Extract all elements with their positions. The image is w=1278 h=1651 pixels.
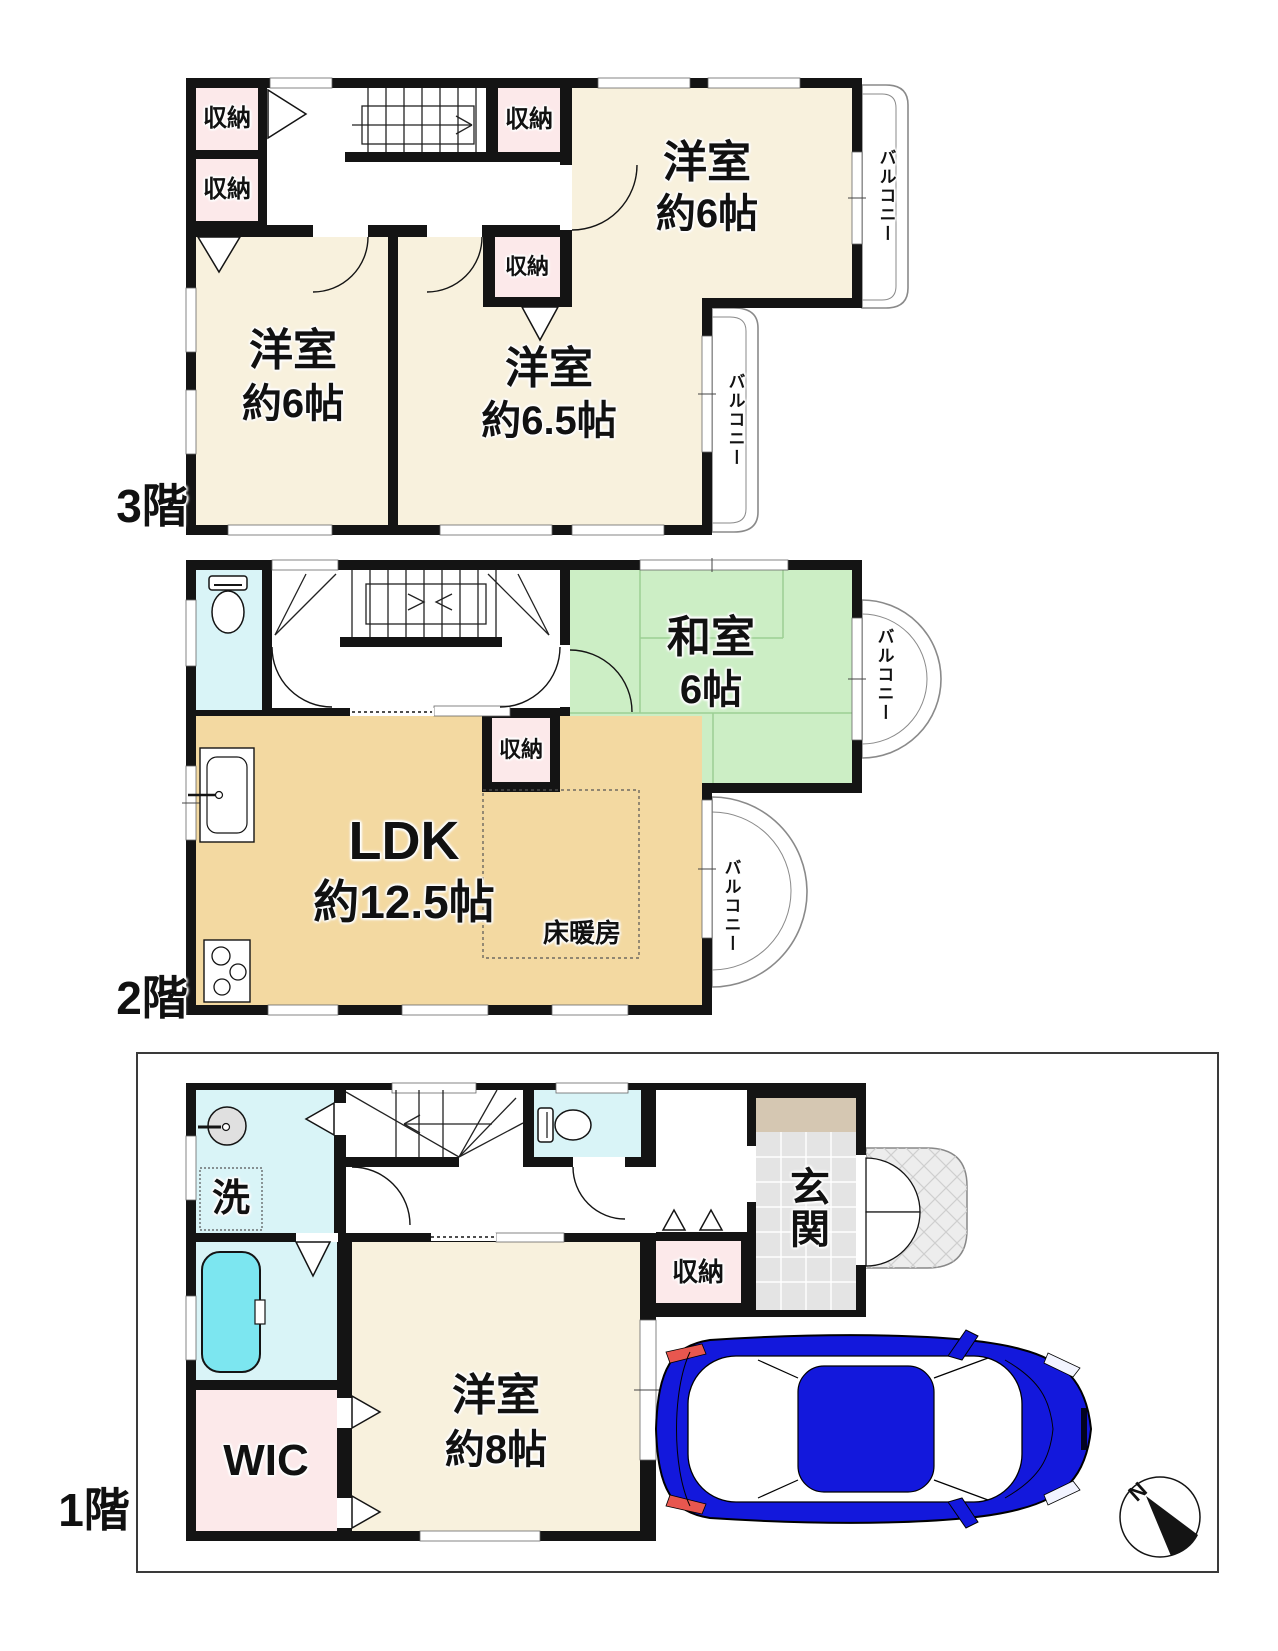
f3-stair-wall — [345, 152, 560, 162]
car-illustration — [656, 1330, 1091, 1528]
f2-stove-icon — [204, 940, 250, 1002]
f1-entrance-label: 玄関 — [786, 1166, 826, 1250]
f3-balcony-mid-label: バルコニー — [727, 373, 744, 468]
f2-toilet-icon — [209, 576, 247, 633]
f1-stairwell — [346, 1090, 523, 1167]
f3-room-top-name: 洋室 — [663, 141, 751, 185]
f1-entry-step — [756, 1098, 856, 1132]
car-grille — [1081, 1408, 1087, 1450]
f3-room-left-area: 約6帖 — [242, 384, 344, 424]
car-roof — [798, 1366, 934, 1492]
f3-closet-a-label: 収納 — [203, 107, 251, 131]
f3-room-left-name: 洋室 — [249, 329, 337, 373]
f3-room-left — [196, 237, 388, 525]
f1-toilet-icon — [538, 1108, 591, 1142]
f2-balcony-upper-label: バルコニー — [876, 628, 893, 723]
f2-ldk-name: LDK — [349, 814, 460, 868]
f2-ldk-area: 約12.5帖 — [313, 879, 495, 925]
f1-bathtub-icon — [202, 1252, 265, 1372]
f3-room-mid-area: 約6.5帖 — [481, 401, 617, 441]
f1-stair-wall — [339, 1157, 459, 1167]
floorplan-canvas — [0, 0, 1278, 1651]
f1-entry-hall — [656, 1090, 747, 1232]
f2-washitsu-name: 和室 — [667, 616, 755, 660]
f3-closet-d-label: 収納 — [505, 256, 549, 278]
f1-hall — [346, 1167, 656, 1233]
floorplan-page: 3階 収納 収納 収納 収納 洋室 約6帖 洋室 約6帖 洋室 約6.5帖 バル… — [0, 0, 1278, 1651]
f1-wic-label: WIC — [223, 1439, 309, 1483]
f3-balcony-top-label: バルコニー — [878, 149, 895, 244]
f1-room-area: 約8帖 — [445, 1430, 547, 1470]
f1-bath-faucet — [255, 1300, 265, 1324]
f2-closet-label: 収納 — [499, 739, 543, 761]
floor2-label: 2階 — [116, 975, 188, 1021]
f2-balcony-lower-label: バルコニー — [723, 859, 740, 954]
f3-closet-c-label: 収納 — [505, 108, 553, 132]
floor1-plan — [137, 1053, 1218, 1572]
f3-wall-stub — [486, 88, 498, 162]
f1-closet-label: 収納 — [672, 1259, 724, 1285]
f1-laundry-label: 洗 — [212, 1180, 250, 1218]
f3-room-mid-name: 洋室 — [505, 347, 593, 391]
floor3-plan — [186, 78, 908, 535]
f2-floor-heating-label: 床暖房 — [543, 920, 621, 946]
floor3-label: 3階 — [116, 483, 188, 529]
f3-closet-b-label: 収納 — [203, 178, 251, 202]
f2-stair-wall — [340, 637, 502, 647]
floor1-label: 1階 — [58, 1487, 130, 1533]
f1-room-name: 洋室 — [452, 1374, 540, 1418]
f3-room-top-area: 約6帖 — [656, 194, 758, 234]
f2-washitsu-area: 6帖 — [680, 670, 742, 710]
